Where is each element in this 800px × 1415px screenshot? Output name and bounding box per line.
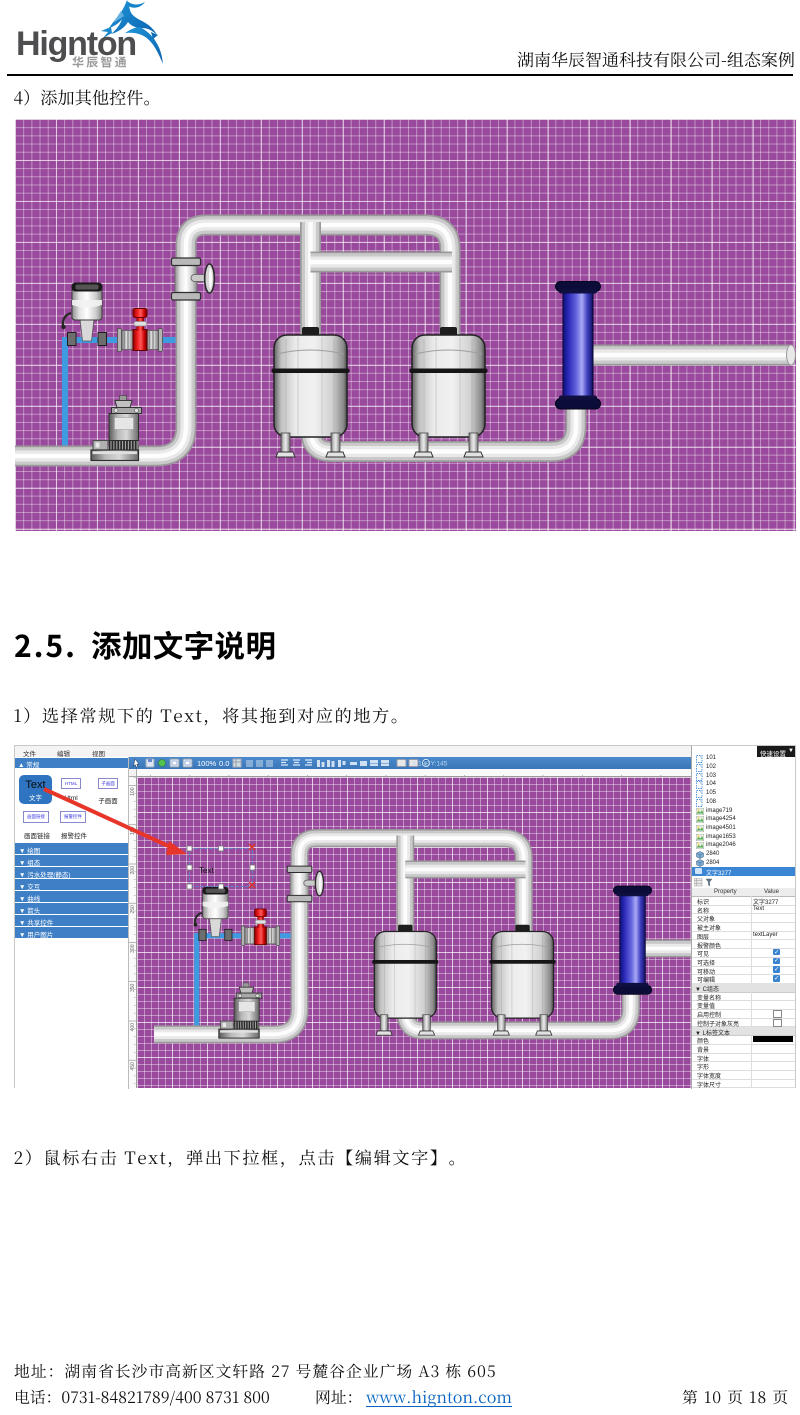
svg-text:100%: 100% [197, 759, 217, 768]
svg-text:0.0: 0.0 [219, 759, 229, 768]
svg-text:400: 400 [130, 1022, 136, 1031]
svg-text:450: 450 [130, 1061, 136, 1070]
svg-text:300: 300 [130, 944, 136, 953]
svg-text:350: 350 [130, 983, 136, 992]
svg-text:X:138 Y:145: X:138 Y:145 [412, 761, 448, 768]
svg-text:250: 250 [130, 904, 136, 913]
